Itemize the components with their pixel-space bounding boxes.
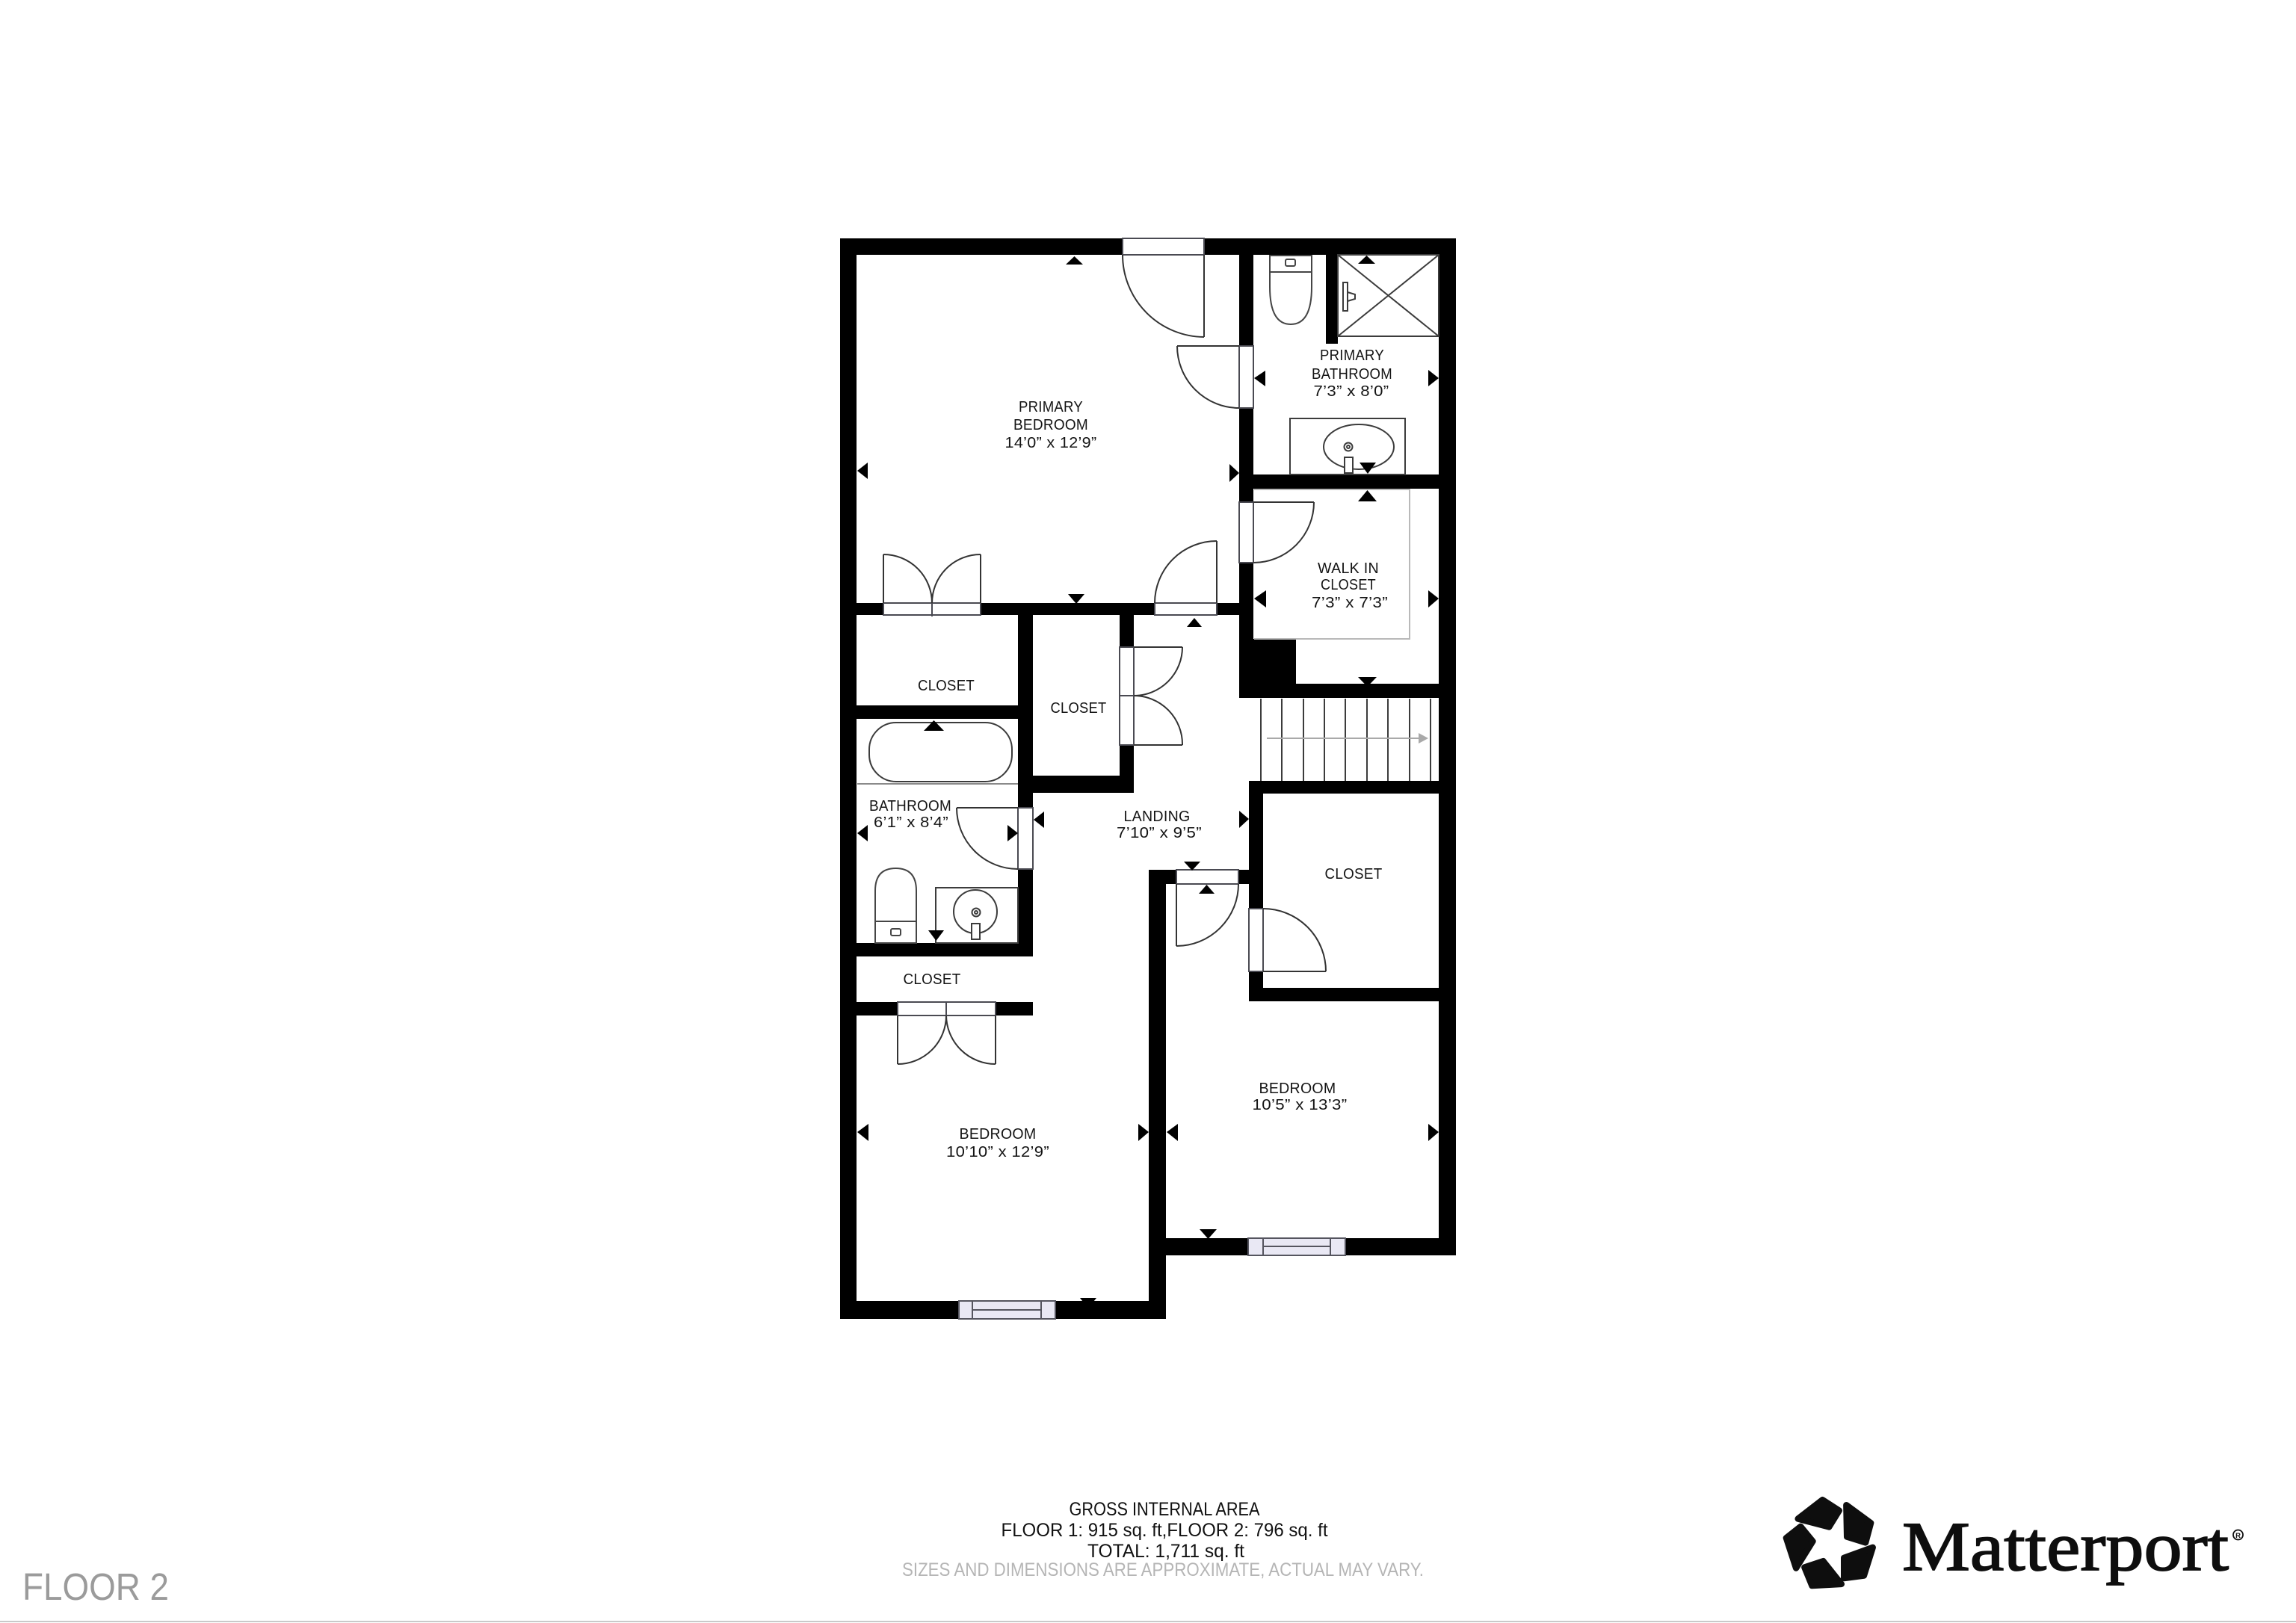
svg-text:BATHROOM: BATHROOM [869,798,951,814]
svg-text:TOTAL: 1,711 sq. ft: TOTAL: 1,711 sq. ft [1087,1541,1244,1562]
svg-text:BEDROOM: BEDROOM [1259,1081,1336,1097]
svg-text:Matterport: Matterport [1902,1509,2229,1586]
svg-text:BEDROOM: BEDROOM [960,1126,1037,1143]
svg-text:WALK IN: WALK IN [1318,560,1379,577]
svg-text:CLOSET: CLOSET [904,971,961,988]
svg-text:10’10” x 12’9”: 10’10” x 12’9” [946,1144,1049,1160]
svg-text:CLOSET: CLOSET [1321,577,1376,593]
svg-text:7’3” x 8’0”: 7’3” x 8’0” [1314,383,1389,400]
svg-text:R: R [2235,1532,2241,1540]
svg-text:14’0” x 12’9”: 14’0” x 12’9” [1005,435,1097,451]
svg-text:BEDROOM: BEDROOM [1013,417,1088,433]
svg-text:CLOSET: CLOSET [918,678,975,694]
svg-text:7’3” x 7’3”: 7’3” x 7’3” [1312,595,1388,611]
svg-text:CLOSET: CLOSET [1325,866,1383,882]
svg-text:PRIMARY: PRIMARY [1320,347,1384,364]
svg-text:GROSS INTERNAL AREA: GROSS INTERNAL AREA [1070,1499,1260,1520]
svg-text:FLOOR 2: FLOOR 2 [22,1565,169,1608]
svg-text:LANDING: LANDING [1124,809,1191,825]
svg-text:FLOOR 1: 915 sq. ft,FLOOR 2: 7: FLOOR 1: 915 sq. ft,FLOOR 2: 796 sq. ft [1002,1520,1328,1541]
svg-text:PRIMARY: PRIMARY [1019,399,1083,415]
svg-text:SIZES AND DIMENSIONS ARE APPRO: SIZES AND DIMENSIONS ARE APPROXIMATE, AC… [902,1559,1424,1580]
svg-text:6’1” x 8’4”: 6’1” x 8’4” [874,814,948,831]
svg-text:7’10” x 9’5”: 7’10” x 9’5” [1117,825,1202,841]
svg-text:10’5” x 13’3”: 10’5” x 13’3” [1253,1097,1348,1113]
svg-text:BATHROOM: BATHROOM [1312,366,1392,383]
svg-text:CLOSET: CLOSET [1051,700,1107,717]
